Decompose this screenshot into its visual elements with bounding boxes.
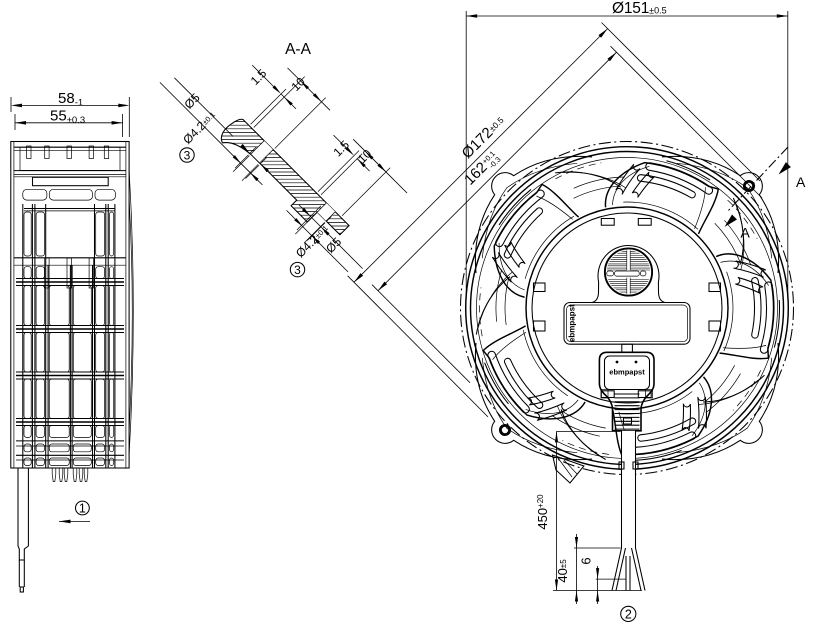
svg-text:10: 10 xyxy=(355,146,375,166)
svg-text:ebmpapst: ebmpapst xyxy=(568,304,577,342)
svg-text:ebmpapst: ebmpapst xyxy=(609,367,645,376)
svg-text:450+20: 450+20 xyxy=(535,494,550,530)
svg-text:1: 1 xyxy=(79,502,86,516)
svg-text:1.5: 1.5 xyxy=(248,66,270,88)
svg-text:Ø151±0.5: Ø151±0.5 xyxy=(612,0,667,17)
svg-text:A: A xyxy=(741,225,751,241)
svg-text:55±0.3: 55±0.3 xyxy=(50,108,85,127)
svg-text:2: 2 xyxy=(625,607,632,621)
svg-text:A-A: A-A xyxy=(285,41,312,58)
svg-text:3: 3 xyxy=(294,263,301,277)
svg-text:Ø4.2±0.1: Ø4.2±0.1 xyxy=(180,108,219,147)
svg-text:Ø5: Ø5 xyxy=(323,234,344,255)
svg-text:1.5: 1.5 xyxy=(330,137,352,159)
svg-text:Ø5: Ø5 xyxy=(181,90,202,111)
svg-text:A: A xyxy=(796,174,806,190)
svg-text:3: 3 xyxy=(184,149,191,163)
svg-text:58-1: 58-1 xyxy=(58,90,83,109)
svg-text:6: 6 xyxy=(579,557,594,564)
svg-text:10: 10 xyxy=(288,74,308,94)
svg-text:40±5: 40±5 xyxy=(555,559,570,583)
